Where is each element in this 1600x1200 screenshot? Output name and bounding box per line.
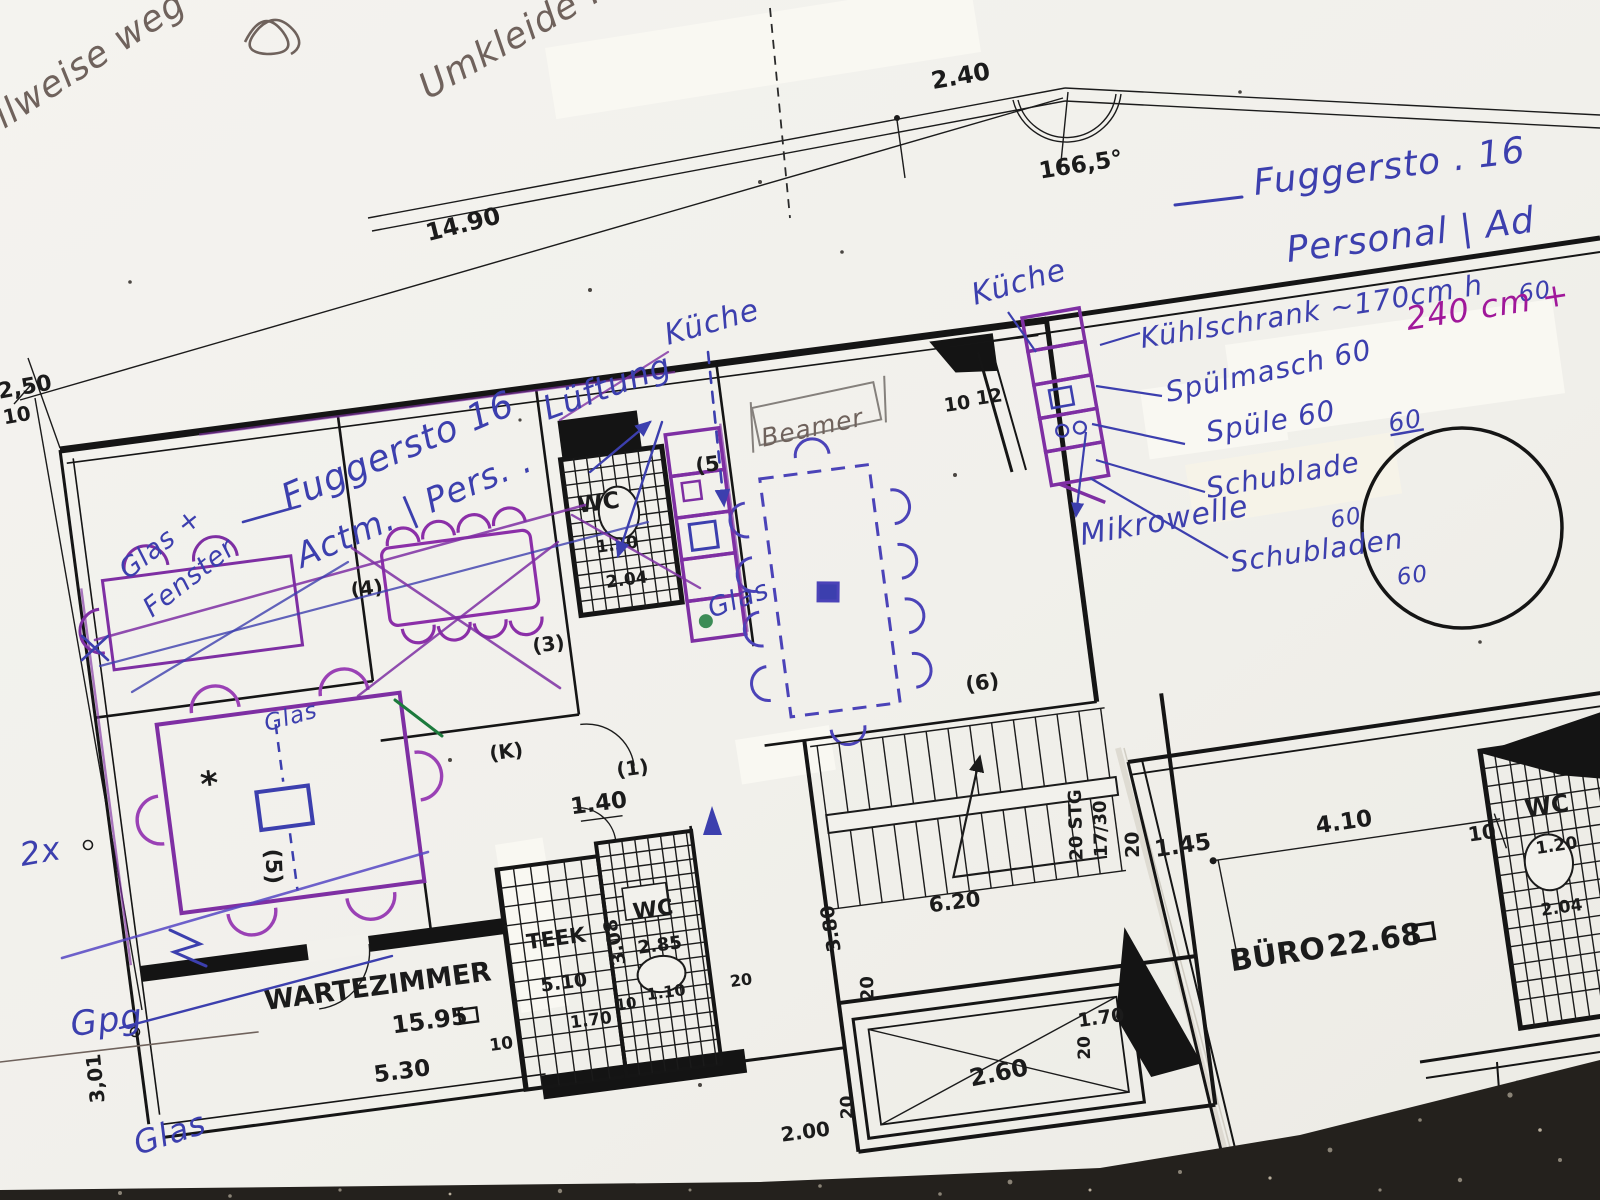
dim-20-elev2: 20 <box>1075 1036 1096 1060</box>
dim-stg: 20 STG <box>1065 789 1088 861</box>
note-spuele-60: 60 <box>1386 403 1424 437</box>
note-2x: 2x <box>17 829 64 874</box>
mark-5-top: (5 <box>694 451 721 478</box>
dim-stg-ratio: 17/30 <box>1090 800 1112 857</box>
dim-20-wc: 20 <box>729 969 754 991</box>
wc-top-label: WC <box>576 488 621 519</box>
mark-1: (1) <box>615 754 650 782</box>
dim-10-left: 10 <box>1 401 33 429</box>
dim-20-stair2: 20 <box>857 976 879 1002</box>
dim-10-top: 10 <box>943 391 972 416</box>
mark-3: (3) <box>531 630 566 658</box>
wc-bottom-label: WC <box>631 895 674 925</box>
dim-10-wc: 10 <box>615 994 638 1015</box>
dim-20-stair: 20 <box>1121 831 1144 858</box>
floorplan-canvas: 2.40 166,5° 14.90 2,50 10 10 12 <box>0 0 1600 1200</box>
dim-20-elev: 20 <box>837 1095 858 1119</box>
mark-4: (4) <box>349 574 384 602</box>
room-number-5-table: (5) <box>259 848 286 884</box>
dim-3-01: 3,01 <box>81 1053 110 1104</box>
mark-k: (K) <box>488 737 525 765</box>
dim-10-wz: 10 <box>488 1033 514 1056</box>
mark-6: (6) <box>964 669 1001 697</box>
floorplan-photo: 2.40 166,5° 14.90 2,50 10 10 12 <box>0 0 1600 1200</box>
note-schubladen-60: 60 <box>1395 561 1430 591</box>
